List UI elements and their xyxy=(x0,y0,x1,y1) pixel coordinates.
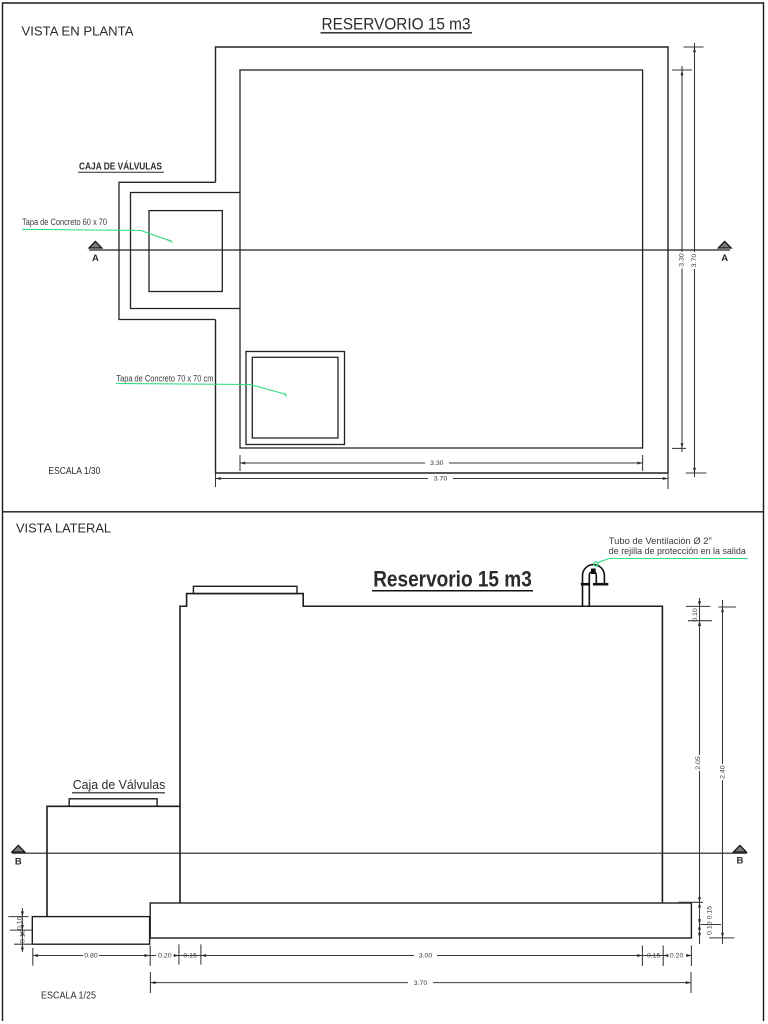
svg-text:RESERVORIO 15 m3: RESERVORIO 15 m3 xyxy=(322,16,471,34)
svg-text:0.20: 0.20 xyxy=(670,953,684,960)
svg-text:0.15: 0.15 xyxy=(647,953,661,960)
svg-text:CAJA DE VÁLVULAS: CAJA DE VÁLVULAS xyxy=(79,160,162,172)
svg-text:A: A xyxy=(92,253,99,264)
svg-text:0.10: 0.10 xyxy=(692,608,699,622)
svg-text:ESCALA 1/30: ESCALA 1/30 xyxy=(48,465,100,477)
svg-text:3.70: 3.70 xyxy=(691,253,698,267)
svg-text:3.70: 3.70 xyxy=(434,476,448,483)
svg-text:0.10: 0.10 xyxy=(707,921,714,935)
svg-text:3.30: 3.30 xyxy=(430,460,444,467)
svg-text:3.00: 3.00 xyxy=(419,953,433,960)
svg-text:0.10: 0.10 xyxy=(17,916,24,930)
svg-text:Tapa de Concreto 70 x 70 cm: Tapa de Concreto 70 x 70 cm xyxy=(116,373,213,384)
svg-text:B: B xyxy=(736,855,743,866)
svg-text:3.70: 3.70 xyxy=(414,980,428,987)
svg-text:A: A xyxy=(721,253,728,264)
svg-text:B: B xyxy=(15,856,22,867)
svg-text:VISTA EN PLANTA: VISTA EN PLANTA xyxy=(22,23,134,38)
svg-text:de rejilla de protección en la: de rejilla de protección en la salida xyxy=(609,546,747,557)
svg-text:Reservorio 15 m3: Reservorio 15 m3 xyxy=(373,567,532,592)
svg-text:2.05: 2.05 xyxy=(695,756,702,770)
svg-text:2.40: 2.40 xyxy=(719,765,726,779)
svg-text:0.20: 0.20 xyxy=(158,953,172,960)
svg-text:ESCALA 1/25: ESCALA 1/25 xyxy=(41,990,96,1002)
svg-text:VISTA LATERAL: VISTA LATERAL xyxy=(16,520,111,535)
svg-text:0.15: 0.15 xyxy=(707,905,714,919)
svg-text:0.80: 0.80 xyxy=(84,953,98,960)
svg-text:0.10: 0.10 xyxy=(20,929,27,943)
svg-text:Tapa de Concreto 60 x 70: Tapa de Concreto 60 x 70 xyxy=(22,217,107,228)
svg-text:Caja de Válvulas: Caja de Válvulas xyxy=(73,777,166,792)
svg-text:0.15: 0.15 xyxy=(183,953,197,960)
svg-text:3.30: 3.30 xyxy=(679,253,686,267)
